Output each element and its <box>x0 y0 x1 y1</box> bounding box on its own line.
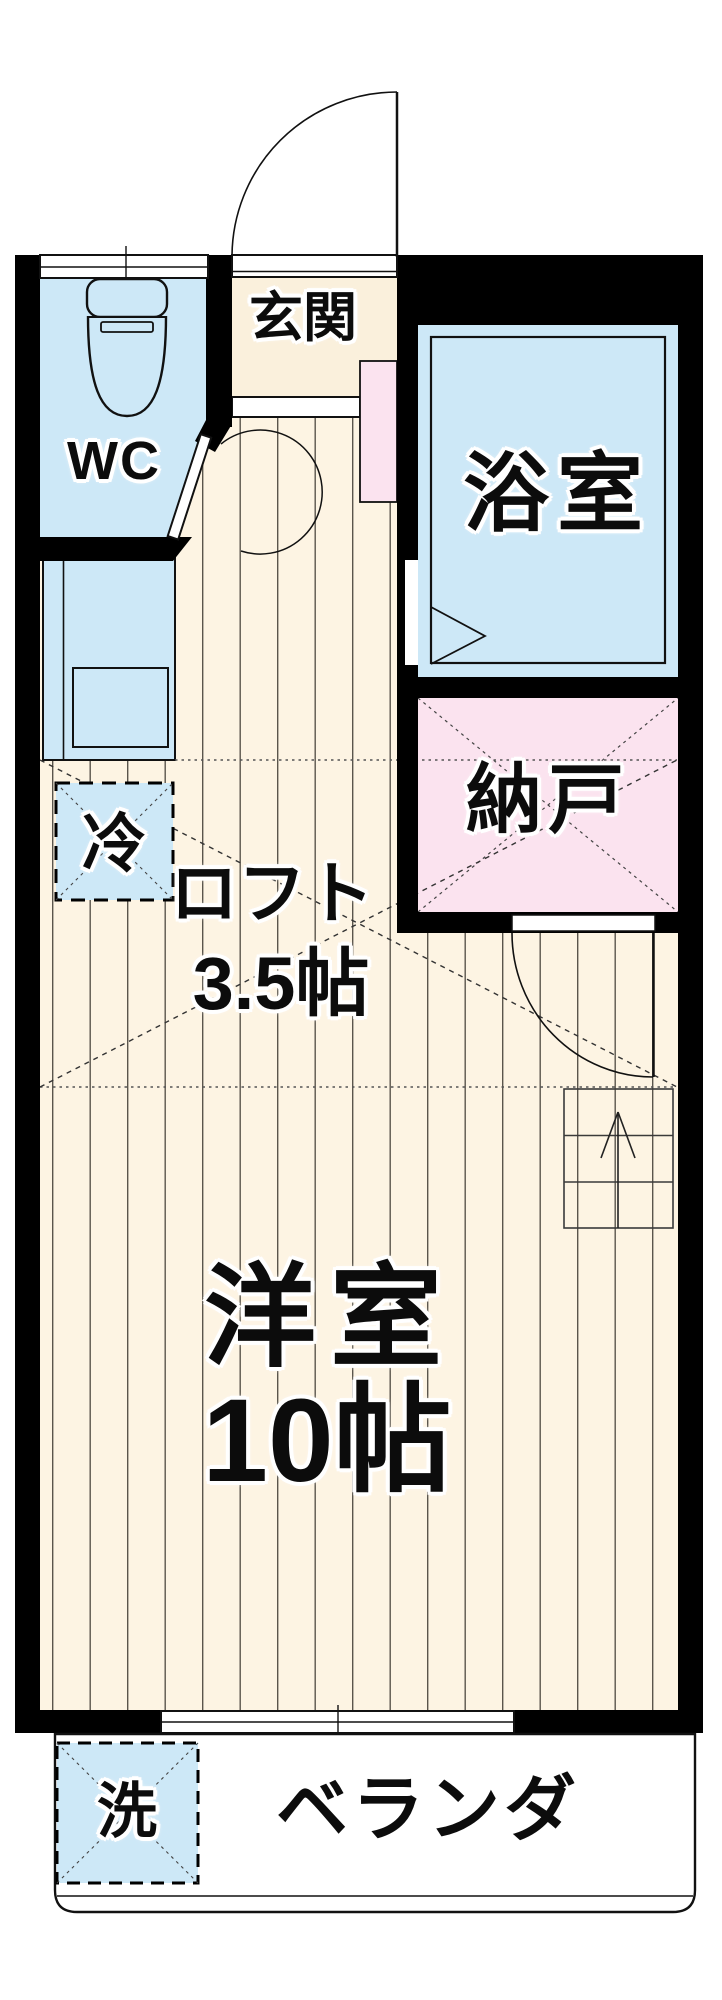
wall-bottom-right <box>514 1710 703 1733</box>
floor-plan: 玄関 WC 浴室 納戸 ロフト 3.5帖 冷 洋室 10帖 洗 ベランダ <box>0 0 722 2000</box>
wc-label: WC <box>67 434 161 488</box>
loft-label: ロフト <box>170 860 374 928</box>
refrigerator-label: 冷 <box>82 812 146 876</box>
entrance-door <box>232 92 397 257</box>
entrance-step <box>232 397 360 417</box>
wall-bottom-left <box>15 1710 161 1733</box>
loft-size-label: 3.5帖 <box>193 947 370 1021</box>
wall-left <box>15 255 40 1733</box>
wall-bath-bottom <box>397 677 678 698</box>
toilet-icon <box>87 279 167 416</box>
storage-door-opening <box>512 915 655 931</box>
shoe-cabinet <box>360 361 397 502</box>
bathroom-label: 浴室 <box>463 451 651 537</box>
storage-label: 納戸 <box>466 763 630 839</box>
veranda-label: ベランダ <box>276 1774 580 1846</box>
wall-entrance-pier <box>206 255 232 427</box>
wall-top-right-block <box>397 255 703 325</box>
wall-right <box>678 255 703 1733</box>
main-room-label: 洋室 <box>204 1262 456 1374</box>
main-room-size-label: 10帖 <box>202 1382 451 1500</box>
bath-door-opening <box>405 560 418 665</box>
wall-storage-left <box>397 698 418 933</box>
entrance-label: 玄関 <box>249 291 357 345</box>
entrance-threshold <box>232 255 397 277</box>
washing-machine-label: 洗 <box>97 1782 157 1842</box>
wall-wc-bottom <box>15 537 192 561</box>
wc-window <box>40 246 208 278</box>
kitchen-unit <box>43 558 175 760</box>
